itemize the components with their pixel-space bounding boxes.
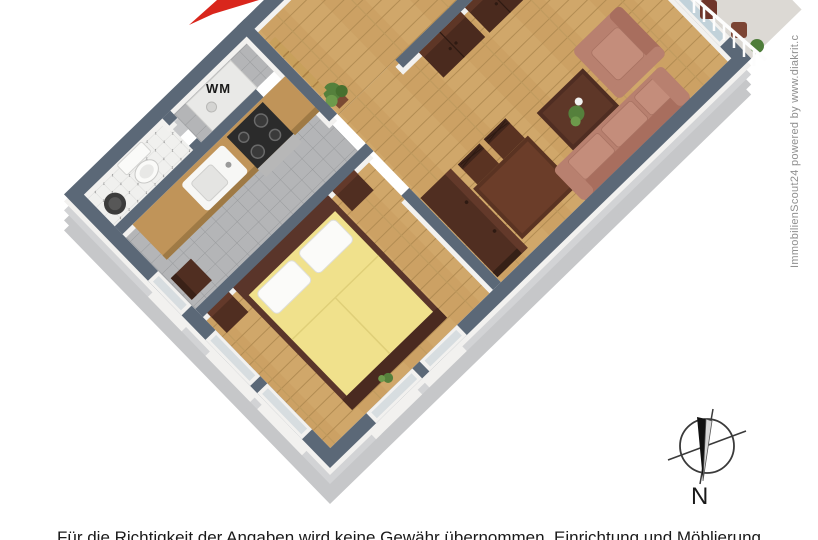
watermark-text: ImmobilienScout24 powered by www.diakrit… [789, 0, 801, 268]
floorplan-page: WM N ImmobilienScout24 powered by www.di… [0, 0, 818, 540]
washing-machine-label: WM [206, 81, 231, 96]
disclaimer-text: Für die Richtigkeit der Angaben wird kei… [0, 528, 818, 540]
compass-rose-icon [668, 409, 746, 484]
floorplan-3d-view [0, 0, 818, 540]
compass-north-label: N [691, 483, 708, 511]
